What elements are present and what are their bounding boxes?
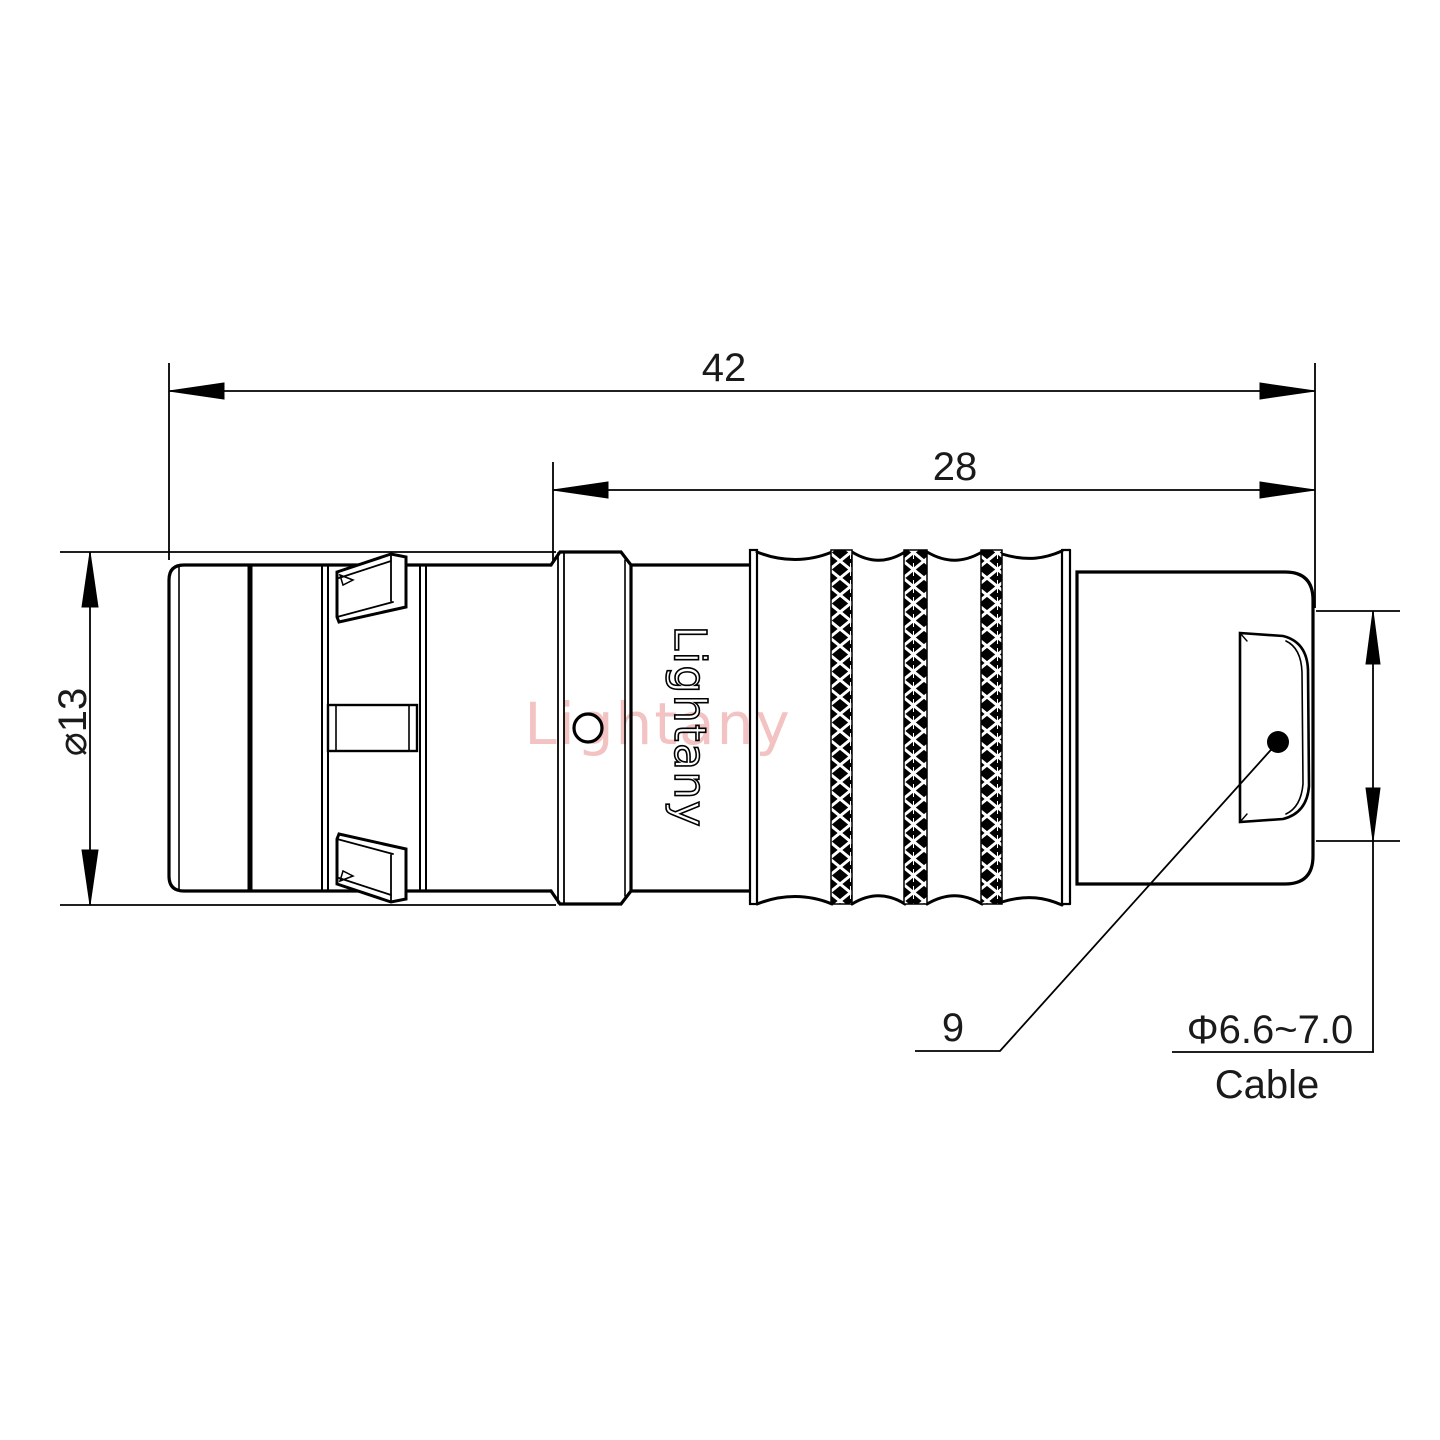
arrow-right-icon — [1260, 482, 1315, 498]
cable-word-label: Cable — [1215, 1063, 1320, 1107]
knurl-band-1 — [831, 550, 852, 904]
knurl-band-3 — [981, 550, 1002, 904]
arrow-left-icon — [169, 383, 224, 399]
dim-13-label: ⌀13 — [51, 688, 95, 757]
arrow-right-icon — [1260, 383, 1315, 399]
arrow-up-icon — [1366, 611, 1380, 664]
arrow-down-icon — [1366, 788, 1380, 841]
rearbody-fill — [1077, 572, 1313, 884]
drawing-canvas: Lightany — [0, 0, 1440, 1440]
connector-engineering-drawing: Lightany — [0, 0, 1440, 1440]
arrow-left-icon — [553, 482, 608, 498]
knurl-band-2 — [904, 550, 927, 904]
dimension-front-length: 28 — [553, 445, 1315, 563]
engraving-text: Lightany — [664, 626, 715, 829]
dim-28-label: 28 — [933, 445, 978, 489]
dim-9-label: 9 — [942, 1006, 964, 1050]
cable-diameter-label: Φ6.6~7.0 — [1187, 1008, 1353, 1052]
arrow-down-icon — [82, 850, 98, 905]
collar-hole — [574, 714, 602, 742]
dim-42-label: 42 — [702, 346, 747, 390]
arrow-up-icon — [82, 552, 98, 607]
